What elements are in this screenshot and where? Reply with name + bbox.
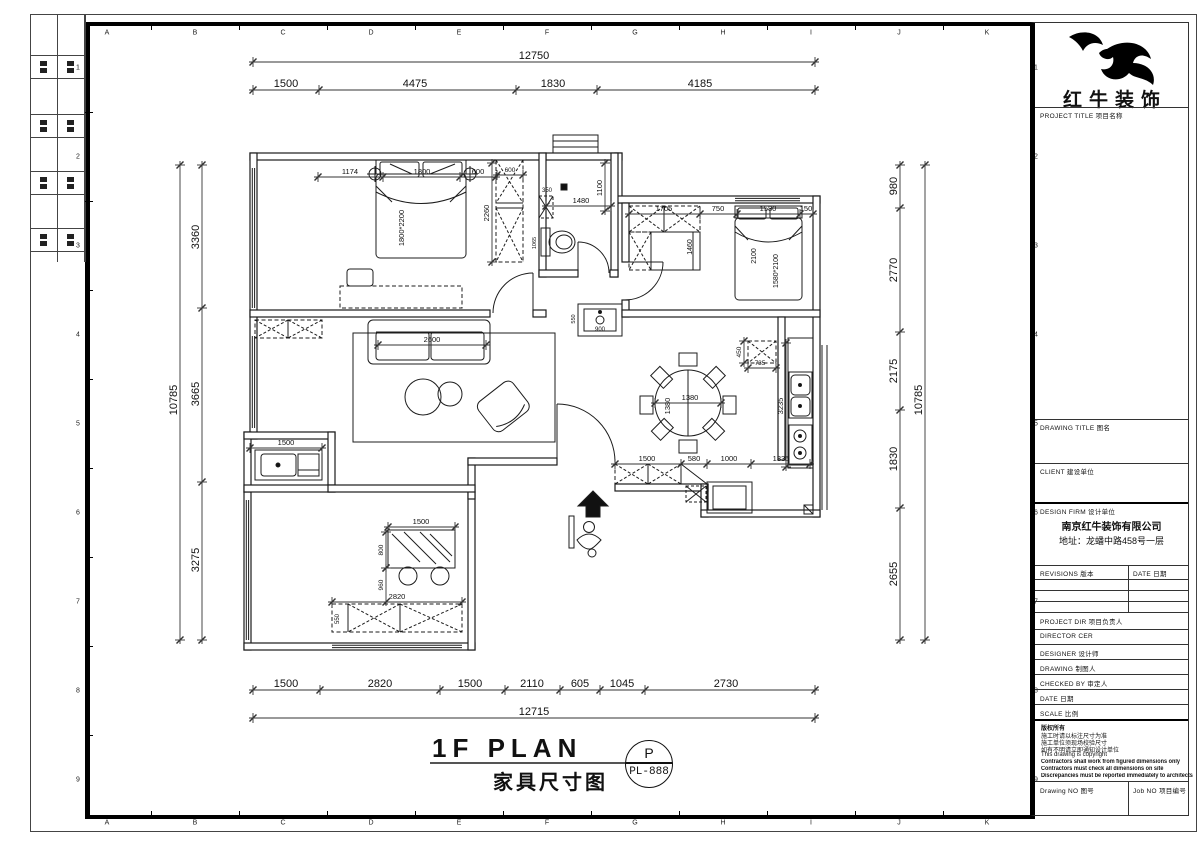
dim-label: 580 bbox=[688, 454, 701, 463]
dimension-chain: 450 bbox=[736, 337, 749, 367]
dim-label: 10785 bbox=[168, 385, 180, 416]
dim-label: 750 bbox=[712, 204, 725, 213]
dimension-chain: 150028201500211060510452730 bbox=[249, 678, 819, 695]
dimension-chain: 1500 bbox=[246, 438, 326, 453]
person-figure bbox=[569, 516, 601, 557]
dim-label: 4475 bbox=[403, 78, 427, 90]
furniture-dim-label: 1800*2200 bbox=[397, 210, 406, 246]
dimension-chain: 960 bbox=[378, 564, 391, 606]
fridge bbox=[707, 482, 752, 513]
dimension-chain: 336036653275 bbox=[190, 161, 207, 644]
floor-plan-canvas: 1275015004475183041851500282015002110605… bbox=[0, 0, 1200, 844]
dimension-chain: 10785 bbox=[168, 161, 185, 644]
dim-label: 2110 bbox=[520, 678, 544, 690]
tb-copyright-7: Discrepancies must be reported immediate… bbox=[1041, 773, 1193, 779]
dim-label: 1500 bbox=[274, 678, 298, 690]
dim-label: 1580 bbox=[760, 204, 777, 213]
dim-label: 2820 bbox=[368, 678, 392, 690]
dim-label: 10785 bbox=[913, 385, 925, 416]
plan-title-zh: 家具尺寸图 bbox=[493, 766, 608, 795]
dim-label: 1500 bbox=[278, 438, 295, 447]
master-bench bbox=[340, 286, 462, 308]
side-table bbox=[438, 382, 462, 406]
study-desk bbox=[388, 530, 455, 585]
dim-label: 2820 bbox=[389, 592, 406, 601]
dim-label: 3665 bbox=[190, 382, 202, 406]
dim-label: 980 bbox=[888, 177, 900, 195]
dimension-chain: 12715 bbox=[249, 706, 819, 723]
dim-label: 960 bbox=[378, 579, 385, 590]
walls bbox=[244, 153, 820, 650]
tb-revisions-label: REVISIONS 版本 bbox=[1040, 568, 1094, 578]
dim-label: 3360 bbox=[190, 225, 202, 249]
dim-label: 735 bbox=[755, 360, 766, 367]
dim-label: 450 bbox=[736, 346, 743, 357]
dim-label: 12750 bbox=[519, 50, 550, 62]
furniture-dim-label: 550 bbox=[335, 613, 341, 624]
drawing-sheet: AABBCCDDEEFFGGHHIIJJKK112233445566778899 bbox=[0, 0, 1200, 844]
tb-date-label: DATE 日期 bbox=[1040, 693, 1074, 703]
furniture-dim-label: 1460 bbox=[687, 239, 694, 255]
master-stool bbox=[347, 269, 373, 286]
furniture-dim-label: 550 bbox=[571, 314, 577, 323]
furniture bbox=[255, 160, 813, 632]
tb-copyright-4: This drawing is copyright bbox=[1041, 752, 1107, 758]
living-cabinet bbox=[255, 320, 322, 338]
tb-project-dir-label: PROJECT DIR 项目负责人 bbox=[1040, 616, 1123, 626]
dimension-chain: 1500447518304185 bbox=[249, 78, 819, 95]
dimension-chain: 600 bbox=[493, 167, 527, 180]
furniture-dim-label: 1580*2100 bbox=[773, 254, 780, 288]
tb-project-title-label: PROJECT TITLE 项目名称 bbox=[1040, 110, 1123, 120]
dim-label: 4185 bbox=[688, 78, 712, 90]
dimension-chain: 1100 bbox=[595, 159, 610, 215]
bedroom2-wardrobe bbox=[629, 206, 700, 270]
tb-scale-label: SCALE 比例 bbox=[1040, 708, 1079, 718]
tb-client-label: CLIENT 建设单位 bbox=[1040, 466, 1094, 476]
dim-label: 1830 bbox=[541, 78, 565, 90]
dim-label: 1705 bbox=[656, 204, 673, 213]
dim-label: 1830 bbox=[888, 447, 900, 471]
dim-label: 3275 bbox=[190, 548, 202, 572]
dim-label: 1800 bbox=[414, 167, 431, 176]
dim-label: 2655 bbox=[888, 562, 900, 586]
shoe-cabinet bbox=[615, 464, 707, 502]
dim-label: 1174 bbox=[342, 167, 358, 176]
furniture-dim-label: 350 bbox=[542, 188, 553, 194]
entry-arrow bbox=[578, 491, 608, 517]
stamp-divider bbox=[626, 762, 672, 764]
dim-label: 2600 bbox=[424, 335, 441, 344]
tb-designer-label: DESIGNER 设计师 bbox=[1040, 648, 1099, 658]
furniture-dim-label: 900 bbox=[595, 327, 606, 333]
dim-label: 1500 bbox=[458, 678, 482, 690]
living-rug bbox=[353, 333, 555, 442]
tb-drawing-title-label: DRAWING TITLE 图名 bbox=[1040, 422, 1110, 432]
dim-label: 2175 bbox=[888, 359, 900, 383]
dim-label: 1045 bbox=[610, 678, 634, 690]
dim-label: 1000 bbox=[721, 454, 738, 463]
plan-stamp: P PL-888 bbox=[625, 740, 673, 788]
dim-label: 1500 bbox=[274, 78, 298, 90]
furniture-dim-label: 1380 bbox=[663, 398, 672, 415]
bathroom2-vanity bbox=[255, 450, 322, 480]
tb-drawing-label: DRAWING 制图人 bbox=[1040, 663, 1096, 673]
furniture-dim-label: 2100 bbox=[751, 248, 758, 264]
dim-label: 1335 bbox=[773, 454, 790, 463]
furniture-dim-label: 1065 bbox=[532, 237, 538, 249]
title-block: 红牛装饰 PROJECT TITLE 项目名称 DRAWING TITLE 图名… bbox=[1030, 22, 1189, 816]
dimension-chain: 2600 bbox=[374, 335, 490, 350]
stamp-code: PL-888 bbox=[626, 766, 672, 778]
dim-label: 1380 bbox=[682, 393, 699, 402]
coffee-table bbox=[405, 379, 441, 415]
dimension-chain: 12750 bbox=[249, 50, 819, 67]
plan-title-en: 1F PLAN bbox=[432, 733, 582, 764]
balcony-cabinet bbox=[332, 604, 462, 632]
tb-drawing-no-label: Drawing NO 图号 bbox=[1040, 785, 1094, 795]
dimension-chain: 9802770217518302655 bbox=[888, 161, 905, 644]
dim-label: 600 bbox=[505, 167, 516, 174]
tb-company-addr: 地址：龙蟠中路458号一层 bbox=[1035, 534, 1188, 547]
dim-label: 600 bbox=[472, 167, 485, 176]
tb-checked-by-label: CHECKED BY 审定人 bbox=[1040, 678, 1108, 688]
kitchen-counter bbox=[788, 338, 813, 468]
dim-label: 2770 bbox=[888, 258, 900, 282]
tb-director-label: DIRECTOR CER bbox=[1040, 633, 1093, 640]
dim-label: 12715 bbox=[519, 706, 550, 718]
stamp-letter: P bbox=[626, 745, 672, 761]
dim-label: 1500 bbox=[413, 517, 430, 526]
bedroom2-bed bbox=[735, 206, 802, 300]
tb-job-no-label: Job NO 项目编号 bbox=[1133, 785, 1186, 795]
dim-label: 3235 bbox=[776, 398, 785, 415]
dim-label: 2730 bbox=[714, 678, 738, 690]
dim-label: 1500 bbox=[639, 454, 656, 463]
tb-design-firm-label: DESIGN FIRM 设计单位 bbox=[1040, 506, 1115, 516]
dim-label: 2260 bbox=[482, 205, 491, 222]
dim-label: 1100 bbox=[595, 180, 604, 196]
dim-label: 1480 bbox=[573, 196, 590, 205]
tb-date-col-label: DATE 日期 bbox=[1133, 568, 1167, 578]
dim-label: 800 bbox=[378, 544, 385, 555]
tb-copyright-6: Contractors must check all dimensions on… bbox=[1041, 766, 1163, 772]
tb-company-name: 南京红牛装饰有限公司 bbox=[1035, 518, 1188, 533]
armchair bbox=[475, 378, 532, 434]
redbull-logo-icon bbox=[1051, 27, 1171, 85]
dim-label: 150 bbox=[800, 204, 813, 213]
dimension-chain: 735 bbox=[744, 360, 780, 373]
dim-label: 605 bbox=[571, 678, 589, 690]
tb-copyright-5: Contractors shall work from figured dime… bbox=[1041, 759, 1180, 765]
dimension-chain: 10785 bbox=[913, 161, 930, 644]
